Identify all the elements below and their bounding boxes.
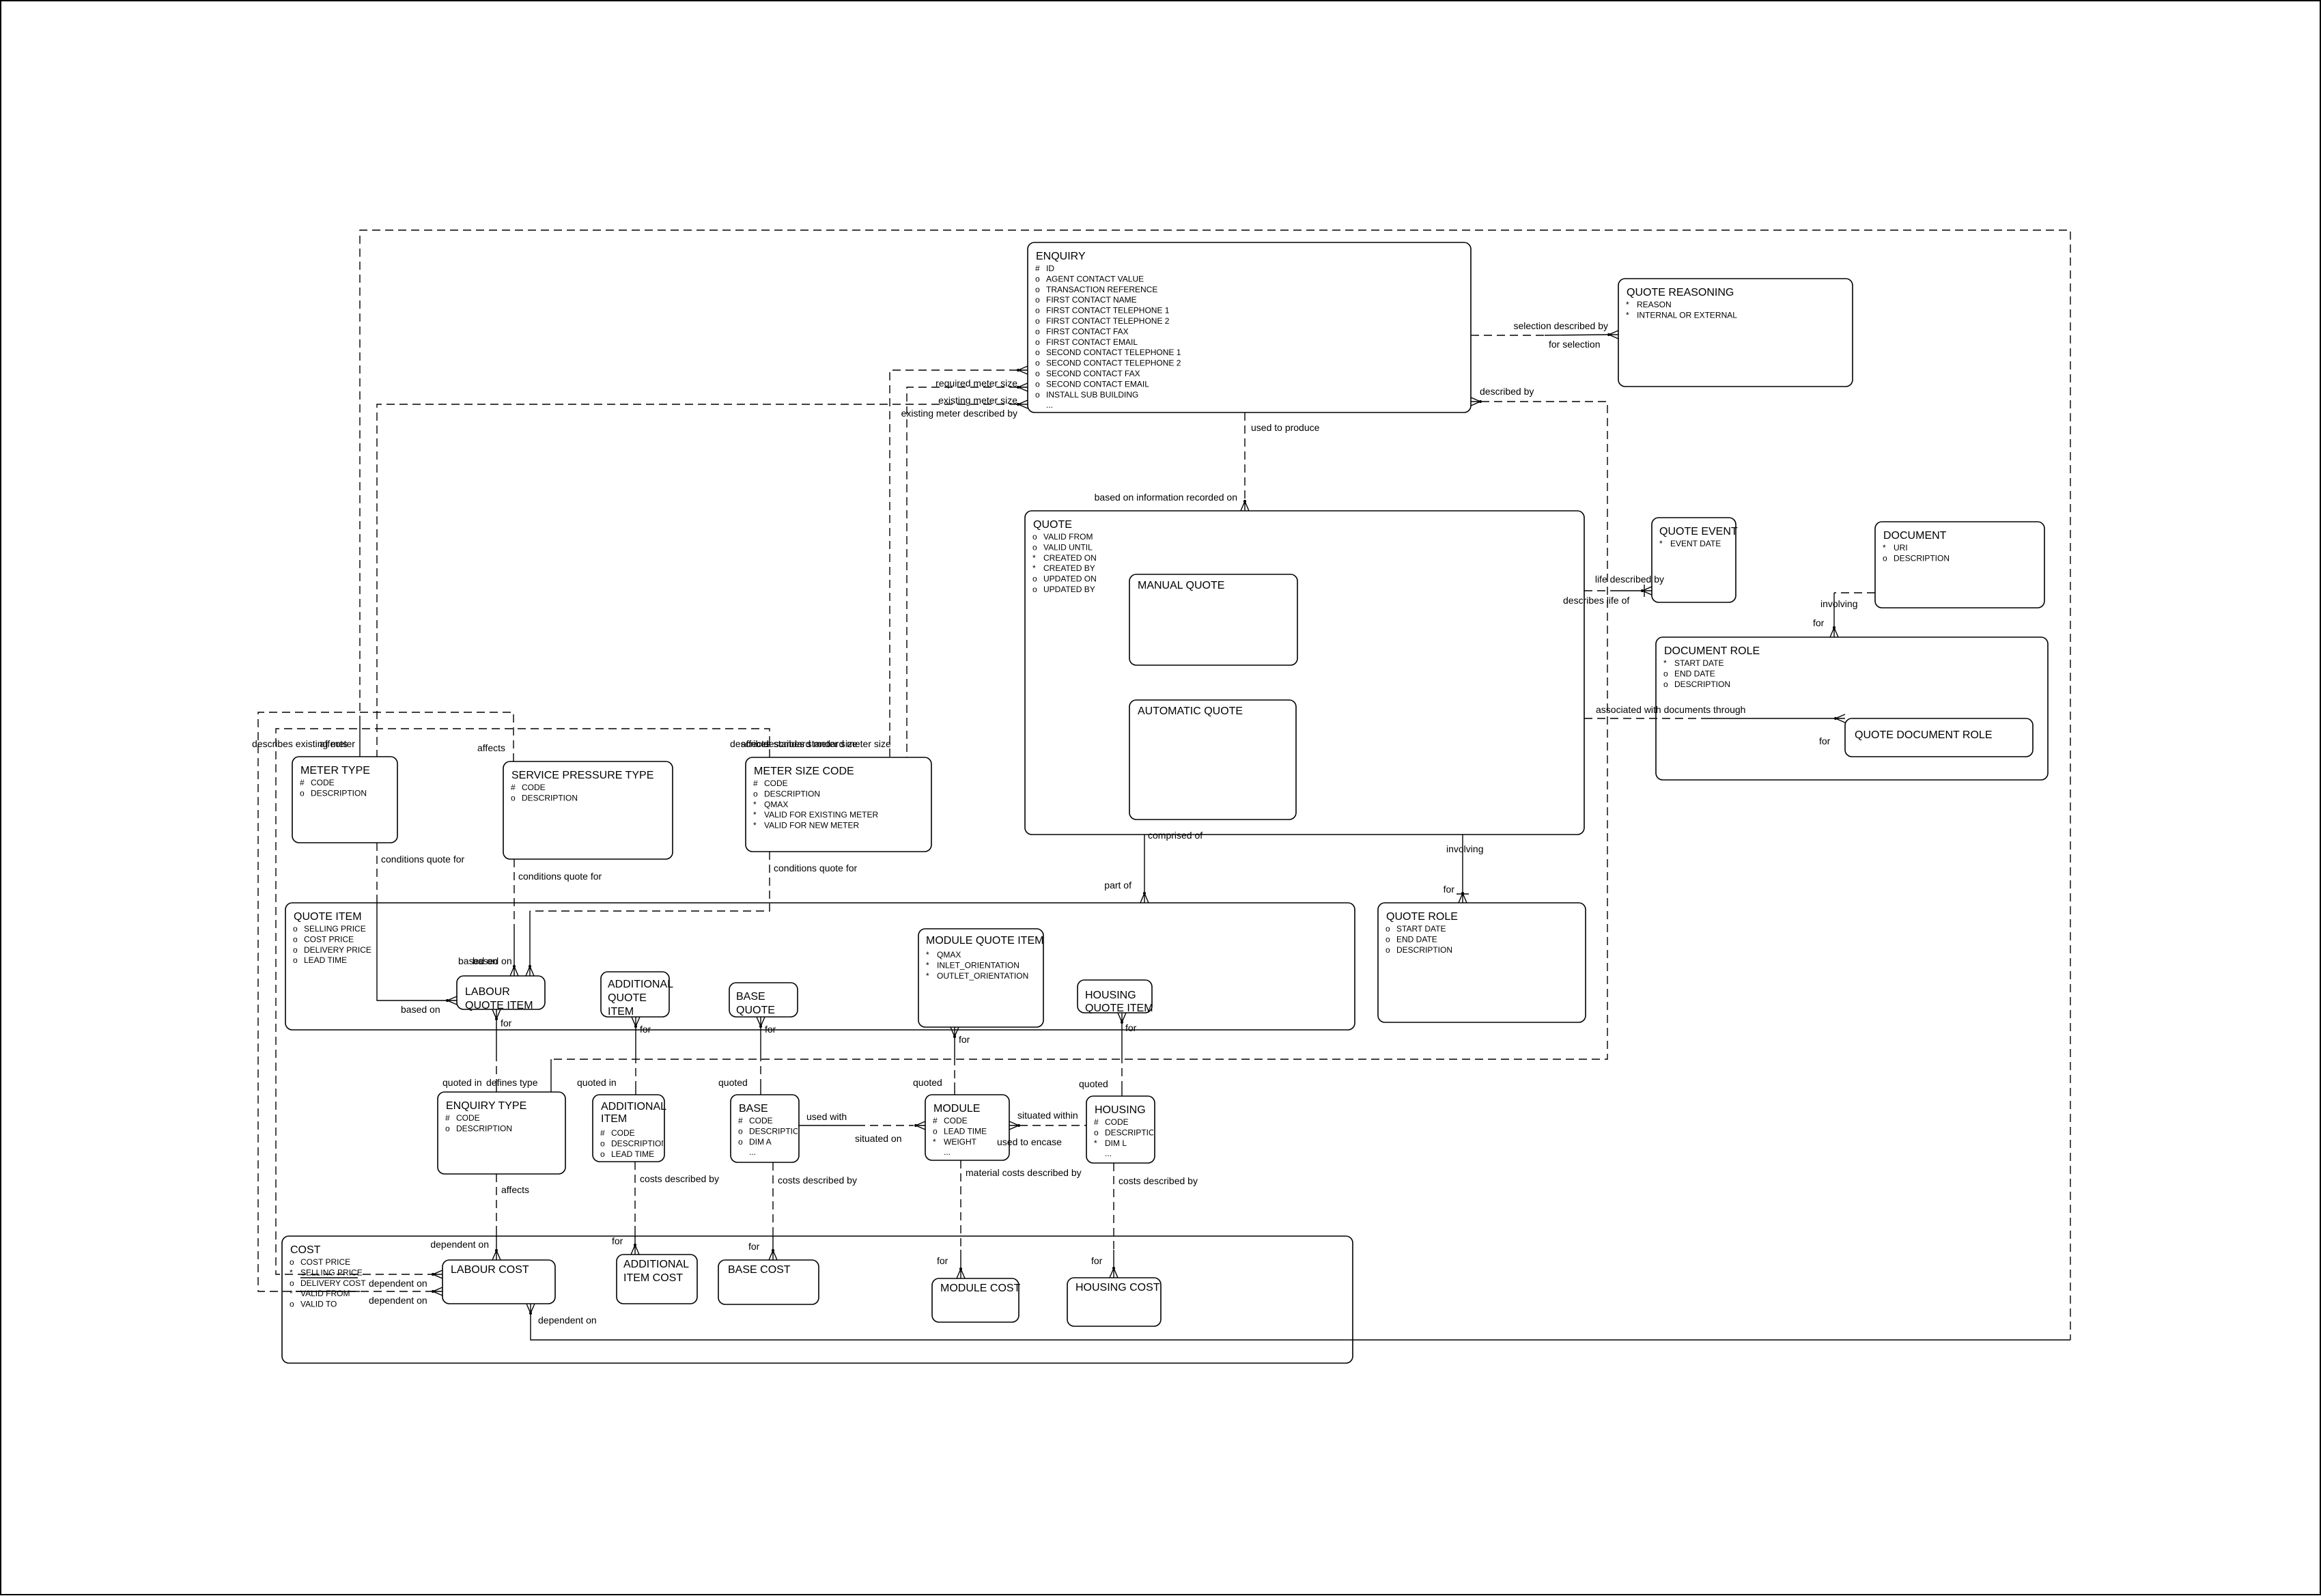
svg-text:quoted in: quoted in bbox=[442, 1077, 482, 1088]
svg-text:DELIVERY COST: DELIVERY COST bbox=[300, 1278, 366, 1288]
svg-text:o: o bbox=[1663, 680, 1668, 689]
svg-text:...: ... bbox=[1105, 1149, 1112, 1158]
svg-text:*: * bbox=[1032, 553, 1036, 563]
svg-text:#: # bbox=[1035, 264, 1040, 273]
svg-text:used to encase: used to encase bbox=[997, 1136, 1062, 1147]
svg-text:SECOND CONTACT EMAIL: SECOND CONTACT EMAIL bbox=[1046, 379, 1149, 389]
svg-text:costs described by: costs described by bbox=[640, 1173, 719, 1184]
svg-text:QUOTE: QUOTE bbox=[1033, 519, 1072, 531]
svg-text:o: o bbox=[1032, 585, 1037, 594]
svg-text:CODE: CODE bbox=[611, 1128, 635, 1138]
svg-text:*: * bbox=[290, 1289, 293, 1298]
svg-text:QMAX: QMAX bbox=[764, 800, 788, 809]
svg-text:ADDITIONAL: ADDITIONAL bbox=[601, 1101, 666, 1112]
svg-text:VALID FROM: VALID FROM bbox=[1043, 532, 1093, 542]
svg-text:o: o bbox=[753, 789, 758, 798]
svg-text:SELLING PRICE: SELLING PRICE bbox=[300, 1268, 363, 1277]
svg-text:o: o bbox=[445, 1123, 450, 1133]
svg-text:ITEM: ITEM bbox=[601, 1113, 627, 1125]
svg-text:for: for bbox=[612, 1235, 623, 1246]
svg-text:INSTALL SUB BUILDING: INSTALL SUB BUILDING bbox=[1046, 390, 1138, 400]
svg-text:MODULE: MODULE bbox=[933, 1103, 980, 1115]
svg-text:defines type: defines type bbox=[486, 1077, 538, 1088]
svg-text:VALID FOR NEW METER: VALID FOR NEW METER bbox=[764, 821, 859, 830]
svg-text:#: # bbox=[445, 1113, 450, 1123]
svg-text:o: o bbox=[1035, 337, 1040, 347]
svg-text:ADDITIONAL: ADDITIONAL bbox=[608, 979, 673, 990]
svg-text:ITEM COST: ITEM COST bbox=[623, 1272, 683, 1284]
svg-text:o: o bbox=[290, 1300, 294, 1309]
svg-text:situated within: situated within bbox=[1017, 1110, 1078, 1121]
svg-text:FIRST CONTACT FAX: FIRST CONTACT FAX bbox=[1046, 326, 1129, 336]
svg-text:#: # bbox=[738, 1116, 743, 1125]
svg-text:HOUSING COST: HOUSING COST bbox=[1075, 1282, 1160, 1293]
svg-text:ADDITIONAL: ADDITIONAL bbox=[623, 1259, 689, 1270]
svg-text:o: o bbox=[1032, 532, 1037, 542]
svg-text:*: * bbox=[1094, 1138, 1097, 1148]
svg-text:*: * bbox=[926, 950, 929, 960]
svg-text:LABOUR: LABOUR bbox=[465, 986, 510, 998]
svg-text:#: # bbox=[511, 783, 516, 792]
svg-text:FIRST CONTACT EMAIL: FIRST CONTACT EMAIL bbox=[1046, 337, 1138, 347]
svg-text:o: o bbox=[933, 1126, 938, 1136]
svg-text:o: o bbox=[738, 1126, 743, 1136]
svg-text:ID: ID bbox=[1046, 264, 1054, 273]
svg-text:FIRST CONTACT TELEPHONE 1: FIRST CONTACT TELEPHONE 1 bbox=[1046, 306, 1170, 316]
svg-text:COST PRICE: COST PRICE bbox=[300, 1257, 350, 1267]
svg-text:used to produce: used to produce bbox=[1251, 422, 1320, 433]
svg-text:o: o bbox=[293, 924, 298, 934]
svg-text:VALID FOR EXISTING METER: VALID FOR EXISTING METER bbox=[764, 810, 878, 820]
svg-text:affects: affects bbox=[501, 1184, 529, 1195]
svg-text:METER TYPE: METER TYPE bbox=[300, 765, 370, 776]
svg-text:for: for bbox=[1819, 736, 1831, 746]
svg-text:quoted: quoted bbox=[913, 1077, 942, 1088]
svg-text:o: o bbox=[1035, 295, 1040, 305]
svg-text:o: o bbox=[1035, 316, 1040, 326]
svg-text:QUOTE: QUOTE bbox=[608, 992, 647, 1004]
svg-text:o: o bbox=[1032, 574, 1037, 584]
svg-text:QUOTE ITEM: QUOTE ITEM bbox=[465, 1000, 533, 1011]
svg-text:AGENT CONTACT VALUE: AGENT CONTACT VALUE bbox=[1046, 274, 1144, 283]
svg-text:QMAX: QMAX bbox=[937, 950, 961, 960]
svg-text:#: # bbox=[1094, 1117, 1099, 1127]
svg-text:MODULE COST: MODULE COST bbox=[940, 1283, 1021, 1294]
svg-text:LABOUR COST: LABOUR COST bbox=[451, 1264, 529, 1276]
svg-text:UPDATED ON: UPDATED ON bbox=[1043, 574, 1097, 584]
svg-text:...: ... bbox=[749, 1147, 756, 1157]
svg-text:UPDATED BY: UPDATED BY bbox=[1043, 585, 1095, 594]
svg-text:o: o bbox=[1035, 390, 1040, 400]
svg-text:based on: based on bbox=[401, 1004, 440, 1015]
svg-text:ITEM: ITEM bbox=[608, 1006, 634, 1018]
svg-text:QUOTE ROLE: QUOTE ROLE bbox=[1386, 911, 1458, 923]
svg-text:BASE COST: BASE COST bbox=[728, 1264, 791, 1276]
svg-text:DESCRIPTION: DESCRIPTION bbox=[311, 788, 367, 798]
svg-text:o: o bbox=[738, 1137, 743, 1147]
svg-text:o: o bbox=[1035, 348, 1040, 357]
svg-text:REASON: REASON bbox=[1637, 300, 1672, 309]
svg-text:BASE: BASE bbox=[739, 1103, 768, 1115]
svg-text:o: o bbox=[290, 1278, 294, 1288]
svg-text:*: * bbox=[1626, 310, 1629, 320]
svg-text:#: # bbox=[753, 779, 758, 788]
svg-text:quoted in: quoted in bbox=[577, 1077, 617, 1088]
svg-text:o: o bbox=[293, 945, 298, 955]
svg-text:involving: involving bbox=[1820, 598, 1857, 609]
svg-text:o: o bbox=[1035, 306, 1040, 316]
svg-text:o: o bbox=[293, 934, 298, 944]
svg-text:o: o bbox=[1035, 379, 1040, 389]
svg-text:VALID TO: VALID TO bbox=[300, 1300, 337, 1309]
svg-text:described by: described by bbox=[1480, 386, 1534, 397]
svg-text:SELLING PRICE: SELLING PRICE bbox=[304, 924, 366, 934]
svg-text:for: for bbox=[1813, 617, 1825, 628]
svg-text:dependent on: dependent on bbox=[369, 1278, 427, 1289]
svg-text:FIRST CONTACT TELEPHONE 2: FIRST CONTACT TELEPHONE 2 bbox=[1046, 316, 1170, 326]
svg-text:OUTLET_ORIENTATION: OUTLET_ORIENTATION bbox=[937, 971, 1028, 981]
svg-text:DESCRIPTION: DESCRIPTION bbox=[1105, 1128, 1161, 1137]
svg-text:CREATED BY: CREATED BY bbox=[1043, 563, 1095, 573]
svg-text:START DATE: START DATE bbox=[1674, 658, 1724, 668]
svg-text:based on: based on bbox=[473, 955, 512, 966]
svg-text:CODE: CODE bbox=[764, 779, 788, 788]
svg-text:CODE: CODE bbox=[522, 783, 546, 792]
svg-text:CODE: CODE bbox=[311, 778, 335, 787]
svg-text:*: * bbox=[926, 960, 929, 970]
svg-text:o: o bbox=[290, 1257, 294, 1267]
svg-text:MANUAL QUOTE: MANUAL QUOTE bbox=[1138, 580, 1224, 591]
svg-text:DESCRIPTION: DESCRIPTION bbox=[749, 1126, 805, 1136]
svg-text:selection described by: selection described by bbox=[1513, 320, 1608, 331]
svg-text:quoted: quoted bbox=[1079, 1078, 1108, 1089]
svg-text:DESCRIPTION: DESCRIPTION bbox=[456, 1123, 512, 1133]
svg-text:METER SIZE CODE: METER SIZE CODE bbox=[754, 766, 854, 777]
svg-text:o: o bbox=[1035, 326, 1040, 336]
svg-text:used with: used with bbox=[806, 1111, 847, 1122]
svg-text:comprised of: comprised of bbox=[1148, 830, 1202, 841]
svg-text:HOUSING: HOUSING bbox=[1095, 1104, 1146, 1116]
svg-text:LEAD TIME: LEAD TIME bbox=[304, 955, 347, 965]
svg-text:affects: affects bbox=[477, 742, 505, 753]
svg-text:material costs described by: material costs described by bbox=[966, 1167, 1082, 1178]
svg-text:URI: URI bbox=[1894, 543, 1908, 552]
svg-text:associated with documents thro: associated with documents through bbox=[1596, 704, 1745, 715]
svg-text:o: o bbox=[293, 955, 298, 965]
svg-text:*: * bbox=[926, 971, 929, 981]
svg-text:o: o bbox=[1385, 934, 1390, 944]
svg-text:VALID FROM: VALID FROM bbox=[300, 1289, 350, 1298]
svg-text:VALID UNTIL: VALID UNTIL bbox=[1043, 542, 1093, 552]
svg-text:dependent on: dependent on bbox=[369, 1295, 427, 1306]
svg-text:CREATED ON: CREATED ON bbox=[1043, 553, 1097, 563]
svg-text:for: for bbox=[501, 1018, 512, 1028]
svg-text:SECOND CONTACT TELEPHONE 1: SECOND CONTACT TELEPHONE 1 bbox=[1046, 348, 1181, 357]
svg-text:costs described by: costs described by bbox=[1119, 1175, 1198, 1186]
svg-text:COST: COST bbox=[290, 1244, 321, 1256]
svg-text:...: ... bbox=[944, 1147, 951, 1157]
svg-text:for: for bbox=[1125, 1022, 1137, 1033]
svg-text:describes life of: describes life of bbox=[1563, 595, 1629, 606]
svg-text:o: o bbox=[511, 793, 516, 802]
svg-text:quoted: quoted bbox=[718, 1077, 748, 1088]
svg-text:CODE: CODE bbox=[456, 1113, 480, 1123]
svg-text:BASE: BASE bbox=[736, 991, 765, 1003]
svg-text:SECOND CONTACT FAX: SECOND CONTACT FAX bbox=[1046, 369, 1140, 378]
svg-text:*: * bbox=[1883, 543, 1886, 552]
svg-text:*: * bbox=[753, 821, 757, 830]
svg-text:AUTOMATIC QUOTE: AUTOMATIC QUOTE bbox=[1138, 705, 1243, 717]
svg-text:o: o bbox=[600, 1149, 605, 1159]
svg-text:DOCUMENT: DOCUMENT bbox=[1883, 530, 1947, 542]
svg-text:LEAD TIME: LEAD TIME bbox=[944, 1126, 987, 1136]
svg-text:WEIGHT: WEIGHT bbox=[944, 1137, 977, 1147]
svg-text:FIRST CONTACT NAME: FIRST CONTACT NAME bbox=[1046, 295, 1137, 305]
svg-text:DESCRIPTION: DESCRIPTION bbox=[611, 1138, 667, 1148]
svg-text:*: * bbox=[933, 1137, 936, 1147]
svg-text:START DATE: START DATE bbox=[1396, 924, 1446, 934]
svg-text:for: for bbox=[1091, 1255, 1103, 1266]
svg-text:QUOTE ITEM: QUOTE ITEM bbox=[294, 911, 362, 923]
svg-text:conditions quote for: conditions quote for bbox=[518, 871, 602, 882]
svg-text:involving: involving bbox=[1446, 843, 1483, 854]
svg-text:SERVICE PRESSURE TYPE: SERVICE PRESSURE TYPE bbox=[511, 770, 653, 781]
svg-text:for: for bbox=[765, 1024, 776, 1035]
svg-text:o: o bbox=[1032, 542, 1037, 552]
svg-text:QUOTE: QUOTE bbox=[736, 1005, 775, 1016]
svg-text:o: o bbox=[1385, 945, 1390, 955]
svg-text:for: for bbox=[640, 1024, 651, 1035]
svg-text:COST PRICE: COST PRICE bbox=[304, 934, 354, 944]
svg-text:ENQUIRY: ENQUIRY bbox=[1036, 251, 1086, 262]
svg-text:based on information recorded: based on information recorded on bbox=[1095, 492, 1237, 503]
svg-text:for: for bbox=[748, 1241, 760, 1252]
svg-text:...: ... bbox=[1046, 400, 1053, 410]
svg-text:DESCRIPTION: DESCRIPTION bbox=[522, 793, 578, 802]
svg-text:DELIVERY PRICE: DELIVERY PRICE bbox=[304, 945, 371, 955]
svg-text:END DATE: END DATE bbox=[1396, 934, 1437, 944]
svg-text:*: * bbox=[1663, 658, 1667, 668]
svg-text:situated on: situated on bbox=[855, 1133, 902, 1144]
svg-text:DESCRIPTION: DESCRIPTION bbox=[1674, 680, 1730, 689]
svg-text:affects: affects bbox=[320, 738, 348, 749]
svg-text:QUOTE DOCUMENT ROLE: QUOTE DOCUMENT ROLE bbox=[1855, 729, 1993, 741]
svg-text:LEAD TIME: LEAD TIME bbox=[611, 1149, 654, 1159]
svg-text:INTERNAL OR EXTERNAL: INTERNAL OR EXTERNAL bbox=[1637, 310, 1737, 320]
svg-text:existing meter described by: existing meter described by bbox=[901, 408, 1017, 419]
svg-text:costs described by: costs described by bbox=[778, 1175, 857, 1186]
svg-text:o: o bbox=[300, 788, 305, 798]
svg-text:*: * bbox=[753, 810, 757, 820]
svg-text:HOUSING: HOUSING bbox=[1085, 990, 1136, 1001]
svg-text:conditions quote for: conditions quote for bbox=[381, 854, 465, 865]
svg-text:ENQUIRY TYPE: ENQUIRY TYPE bbox=[446, 1100, 526, 1112]
svg-text:for selection: for selection bbox=[1549, 339, 1600, 350]
svg-text:*: * bbox=[1032, 563, 1036, 573]
svg-text:part of: part of bbox=[1104, 880, 1131, 891]
svg-text:INLET_ORIENTATION: INLET_ORIENTATION bbox=[937, 960, 1019, 970]
svg-text:END DATE: END DATE bbox=[1674, 669, 1715, 678]
svg-text:dependent on: dependent on bbox=[430, 1239, 489, 1250]
svg-text:o: o bbox=[1094, 1128, 1099, 1137]
svg-text:for: for bbox=[959, 1034, 970, 1045]
svg-text:for: for bbox=[937, 1255, 948, 1266]
svg-text:#: # bbox=[300, 778, 305, 787]
svg-text:CODE: CODE bbox=[1105, 1117, 1129, 1127]
svg-text:DESCRIPTION: DESCRIPTION bbox=[1396, 945, 1452, 955]
svg-text:conditions quote for: conditions quote for bbox=[774, 863, 858, 873]
svg-text:SECOND CONTACT TELEPHONE 2: SECOND CONTACT TELEPHONE 2 bbox=[1046, 359, 1181, 368]
svg-text:#: # bbox=[933, 1116, 938, 1125]
svg-text:*: * bbox=[1659, 539, 1663, 548]
svg-text:for: for bbox=[1444, 884, 1455, 895]
svg-text:o: o bbox=[1663, 669, 1668, 678]
svg-text:*: * bbox=[1626, 300, 1629, 309]
svg-text:*: * bbox=[753, 800, 757, 809]
svg-text:*: * bbox=[290, 1268, 293, 1277]
svg-text:o: o bbox=[1035, 285, 1040, 294]
svg-text:DESCRIPTION: DESCRIPTION bbox=[764, 789, 820, 798]
svg-text:QUOTE EVENT: QUOTE EVENT bbox=[1659, 526, 1738, 537]
svg-text:o: o bbox=[600, 1138, 605, 1148]
svg-text:describes standard meter size: describes standard meter size bbox=[763, 738, 891, 749]
svg-text:CODE: CODE bbox=[944, 1116, 968, 1125]
svg-text:MODULE QUOTE ITEM: MODULE QUOTE ITEM bbox=[926, 935, 1043, 947]
svg-text:EVENT DATE: EVENT DATE bbox=[1670, 539, 1721, 548]
svg-text:life described by: life described by bbox=[1595, 574, 1664, 585]
svg-text:DIM L: DIM L bbox=[1105, 1138, 1127, 1148]
svg-text:TRANSACTION REFERENCE: TRANSACTION REFERENCE bbox=[1046, 285, 1157, 294]
svg-text:o: o bbox=[1035, 274, 1040, 283]
svg-text:DESCRIPTION: DESCRIPTION bbox=[1894, 553, 1950, 563]
svg-text:o: o bbox=[1035, 359, 1040, 368]
svg-text:o: o bbox=[1385, 924, 1390, 934]
svg-text:DIM A: DIM A bbox=[749, 1137, 772, 1147]
svg-text:QUOTE ITEM: QUOTE ITEM bbox=[1085, 1003, 1153, 1014]
svg-text:o: o bbox=[1035, 369, 1040, 378]
svg-text:o: o bbox=[1883, 553, 1887, 563]
svg-text:DOCUMENT ROLE: DOCUMENT ROLE bbox=[1664, 645, 1760, 657]
svg-text:CODE: CODE bbox=[749, 1116, 773, 1125]
svg-text:dependent on: dependent on bbox=[538, 1315, 597, 1326]
svg-text:QUOTE REASONING: QUOTE REASONING bbox=[1627, 287, 1734, 298]
svg-text:#: # bbox=[600, 1128, 605, 1138]
